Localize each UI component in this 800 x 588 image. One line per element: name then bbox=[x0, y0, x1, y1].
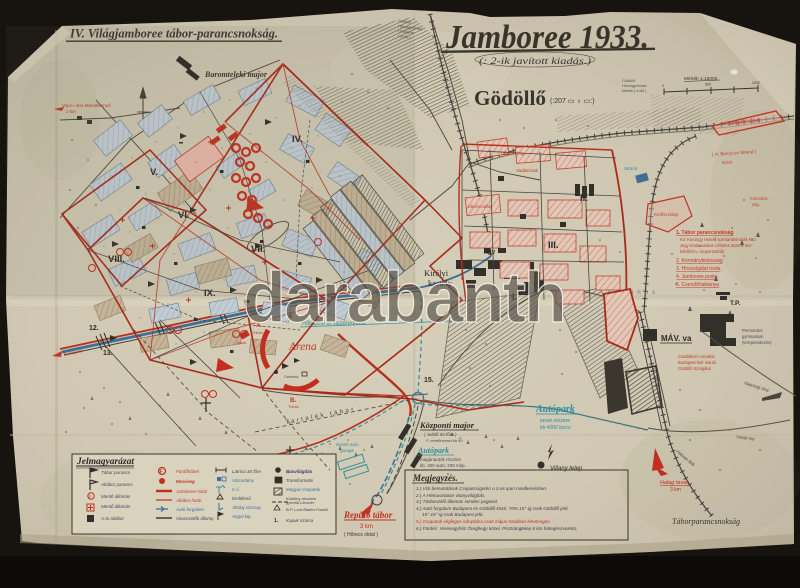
svg-text:Tribün: Tribün bbox=[288, 404, 299, 409]
svg-text:Táborparancsnokság: Táborparancsnokság bbox=[672, 517, 740, 526]
svg-text:( Hőrecs oldal ): ( Hőrecs oldal ) bbox=[344, 532, 378, 538]
svg-text:Jelmagyarázat: Jelmagyarázat bbox=[76, 457, 134, 467]
svg-text:III.: III. bbox=[548, 240, 559, 251]
svg-text:Központi major: Központi major bbox=[419, 420, 475, 430]
svg-text:Nyitott autó: Nyitott autó bbox=[336, 442, 359, 447]
svg-text:Arena: Arena bbox=[288, 341, 317, 353]
svg-text:K.ő.: K.ő. bbox=[232, 487, 240, 492]
svg-text:Autópark: Autópark bbox=[535, 404, 575, 415]
svg-text:12.: 12. bbox=[89, 325, 99, 332]
svg-text:Premontrei: Premontrei bbox=[742, 328, 763, 333]
svg-text:Vivarczetők állomp: Vivarczetők állomp bbox=[176, 516, 214, 521]
svg-text:Mosóreg: Mosóreg bbox=[176, 479, 195, 484]
svg-text:tavak részére: tavak részére bbox=[540, 418, 570, 424]
svg-text:kb. 300 autó, 200 mkp.: kb. 300 autó, 200 mkp. bbox=[420, 463, 466, 468]
svg-text:Latrina 30 főre: Latrina 30 főre bbox=[232, 469, 262, 474]
svg-text:Altábor határ: Altábor határ bbox=[175, 498, 202, 503]
svg-text:Tábrrend kp.: Tábrrend kp. bbox=[500, 151, 526, 156]
svg-text:1. Tábor parancsnokság: 1. Tábor parancsnokság bbox=[676, 230, 734, 236]
svg-text:ség.: ség. bbox=[752, 202, 760, 207]
svg-text:Gödöllő Szolgálat: Gödöllő Szolgálat bbox=[678, 366, 712, 371]
svg-text:garage: garage bbox=[340, 448, 355, 453]
svg-text:2. Kormánybiztosság: 2. Kormánybiztosság bbox=[676, 258, 723, 264]
svg-text:5. Csendőrlaktanya: 5. Csendőrlaktanya bbox=[676, 282, 719, 288]
svg-text:Basvilágítás: Basvilágítás bbox=[286, 469, 313, 474]
svg-text:1.) Vízi bemutatások Csepatcsi: 1.) Vízi bemutatások Csepatcsigetén a 3-… bbox=[416, 486, 547, 491]
svg-text:Mentő állomás: Mentő állomás bbox=[101, 494, 131, 499]
svg-text:Repülő tábor: Repülő tábor bbox=[343, 510, 393, 520]
svg-text:1000: 1000 bbox=[752, 81, 760, 85]
svg-text:3.) Távbeszélő állomás minden: 3.) Távbeszélő állomás minden pagasol. bbox=[416, 499, 498, 504]
svg-text:T.P.: T.P. bbox=[730, 300, 741, 307]
svg-text:5.) Csapatok végleges irányítá: 5.) Csapatok végleges irányítása csak má… bbox=[416, 519, 551, 524]
svg-text:Kir. Korongy Hotelik szertartá: Kir. Korongy Hotelik szertartásirodák P.… bbox=[680, 237, 757, 242]
svg-text:3 km: 3 km bbox=[670, 487, 681, 493]
svg-text:6.) Fürdés: Veresegyház Öreghe: 6.) Fürdés: Veresegyház Öreghegy közel, … bbox=[416, 525, 577, 531]
svg-text:A-la altábor: A-la altábor bbox=[100, 516, 125, 521]
svg-text:Vízcsrtalny: Vízcsrtalny bbox=[232, 478, 255, 483]
svg-text:(tereprendezés): (tereprendezés) bbox=[742, 340, 772, 345]
svg-text:gyerüld Litcsner: gyerüld Litcsner bbox=[286, 500, 315, 505]
svg-text:Vadásznak: Vadásznak bbox=[516, 168, 539, 173]
svg-text:4.) Autó-forgalom Budapest és: 4.) Autó-forgalom Budapest és Gödöllő kö… bbox=[416, 506, 569, 511]
svg-text:Csatlakozó vonatok: Csatlakozó vonatok bbox=[678, 354, 715, 359]
svg-text:Cserkész: Cserkész bbox=[284, 375, 299, 379]
svg-text:Zászló: Zászló bbox=[236, 341, 246, 345]
svg-text:gymnasium: gymnasium bbox=[742, 334, 764, 339]
svg-text:II.: II. bbox=[580, 193, 588, 204]
svg-text:Villany telep: Villany telep bbox=[550, 466, 583, 472]
svg-text:Strand: Strand bbox=[624, 166, 638, 171]
svg-text:Cservész-: Cservész- bbox=[750, 196, 769, 201]
svg-text:3. Hírszolgálat iroda: 3. Hírszolgálat iroda bbox=[676, 266, 721, 272]
svg-text:kb 4000 kocsi: kb 4000 kocsi bbox=[540, 425, 571, 431]
svg-text:P: P bbox=[89, 495, 92, 500]
svg-text:Kíréfiu telep: Kíréfiu telep bbox=[654, 212, 679, 217]
svg-text:15°-19°-ig csak Budapest jelé.: 15°-19°-ig csak Budapest jelé. bbox=[422, 512, 484, 517]
svg-text:MÁV. va: MÁV. va bbox=[661, 334, 692, 343]
svg-text:Angol kip.: Angol kip. bbox=[231, 514, 252, 519]
svg-text:Hercegprimási: Hercegprimási bbox=[622, 84, 647, 88]
svg-text:4. Jamboree posta: 4. Jamboree posta bbox=[676, 274, 718, 280]
svg-text:HÉV: HÉV bbox=[484, 248, 496, 256]
svg-text:B.P. Lord Baden Powell: B.P. Lord Baden Powell bbox=[286, 507, 328, 512]
svg-text:Emlékmű: Emlékmű bbox=[232, 496, 251, 501]
svg-text:Autópark: Autópark bbox=[417, 446, 449, 455]
svg-text:F: F bbox=[160, 470, 163, 476]
svg-text:13.: 13. bbox=[103, 350, 113, 357]
svg-text:Mentő állomás: Mentő állomás bbox=[101, 504, 131, 509]
svg-text:B.: B. bbox=[290, 397, 297, 404]
svg-text:Gödöllő: Gödöllő bbox=[622, 79, 635, 83]
svg-text:3 km: 3 km bbox=[360, 524, 373, 530]
svg-text:Áttalaj vízcsap: Áttalaj vízcsap bbox=[231, 504, 262, 510]
svg-text:Gödöllő: Gödöllő bbox=[474, 86, 546, 110]
svg-text:Altábor parancs.: Altábor parancs. bbox=[100, 482, 134, 487]
svg-text:0: 0 bbox=[662, 84, 664, 88]
svg-text:(:207 ▭ ♁ ▭:): (:207 ▭ ♁ ▭:) bbox=[550, 98, 595, 105]
svg-text:Kapuk száma: Kapuk száma bbox=[286, 518, 314, 523]
svg-text:kisebb ( erdő ): kisebb ( erdő ) bbox=[622, 89, 647, 93]
svg-text:Autó forgalom: Autó forgalom bbox=[175, 507, 204, 512]
svg-text:Halag tavak: Halag tavak bbox=[660, 480, 689, 486]
svg-text:Transformatis: Transformatis bbox=[286, 478, 314, 483]
svg-text:körút: körút bbox=[722, 159, 733, 165]
svg-text:Megjegyzés.: Megjegyzés. bbox=[412, 473, 458, 483]
svg-text:F. rendőrezred kb 50: F. rendőrezred kb 50 bbox=[426, 438, 463, 443]
svg-text:magánautók részére: magánautók részére bbox=[420, 457, 462, 462]
svg-text:Tábor parancs.: Tábor parancs. bbox=[101, 470, 131, 475]
svg-text:500: 500 bbox=[705, 83, 711, 87]
svg-text:Jamboree határ: Jamboree határ bbox=[175, 489, 208, 494]
svg-text:Idezircodák: Idezircodák bbox=[468, 204, 492, 209]
svg-text:1.: 1. bbox=[274, 518, 279, 524]
svg-text:darabanth: darabanth bbox=[243, 259, 565, 338]
svg-text:Magyar csapatok: Magyar csapatok bbox=[286, 487, 321, 492]
svg-text:2.) A Hétruvartalan vitanyvilá: 2.) A Hétruvartalan vitanyvilágítás. bbox=[415, 493, 486, 498]
svg-text:15.: 15. bbox=[424, 377, 434, 384]
svg-text:Budapest felé induló: Budapest felé induló bbox=[678, 360, 717, 365]
svg-text:( Jelölő 50 főre ): ( Jelölő 50 főre ) bbox=[424, 432, 457, 437]
svg-text:Fürdőhátrel: Fürdőhátrel bbox=[176, 469, 200, 474]
svg-text:kéldőcím, csoportosítók: kéldőcím, csoportosítók bbox=[680, 249, 725, 254]
